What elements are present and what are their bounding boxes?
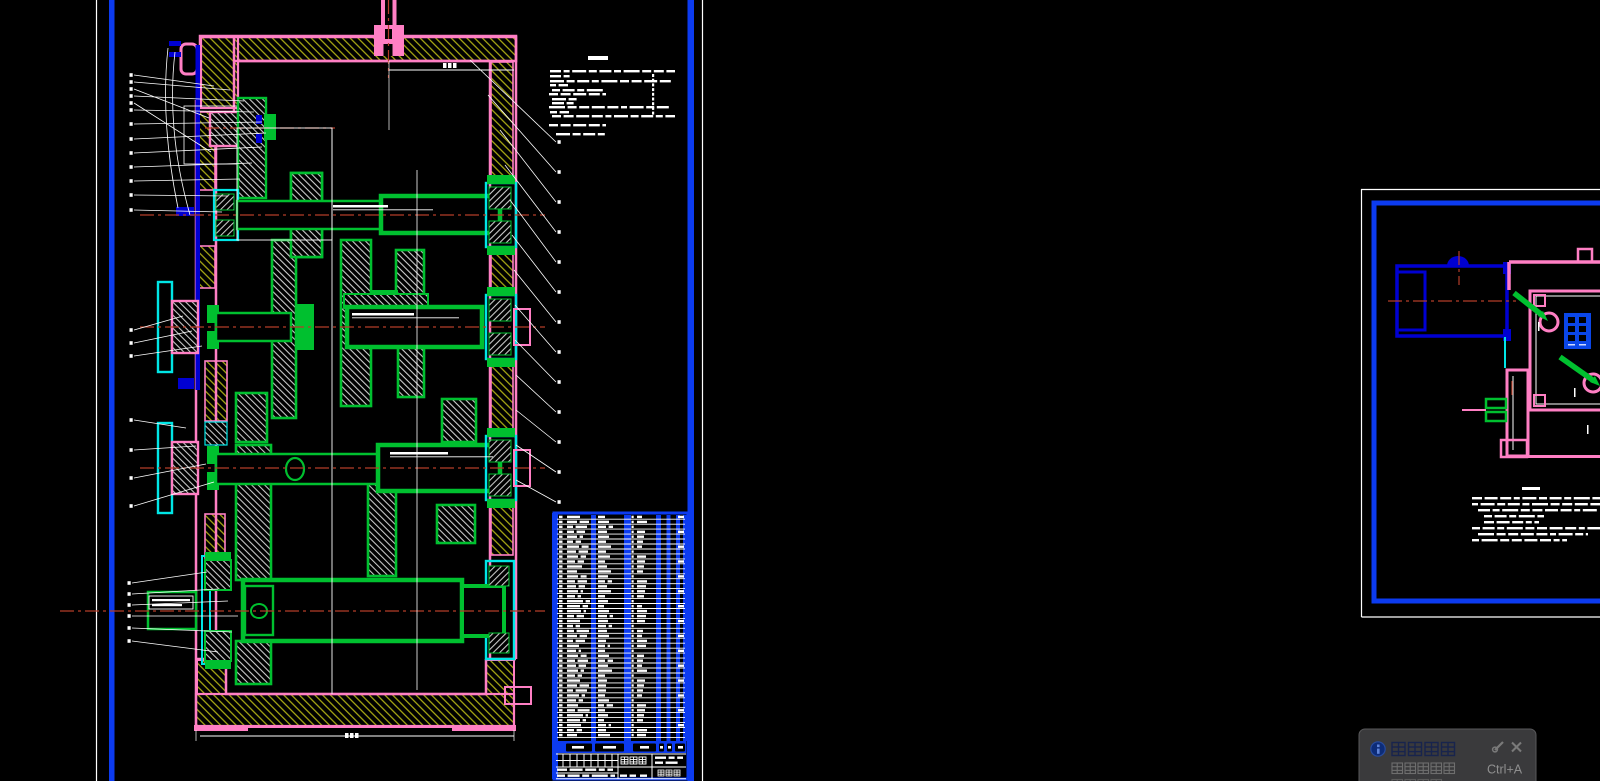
svg-text:Ctrl+A: Ctrl+A bbox=[1487, 763, 1523, 777]
